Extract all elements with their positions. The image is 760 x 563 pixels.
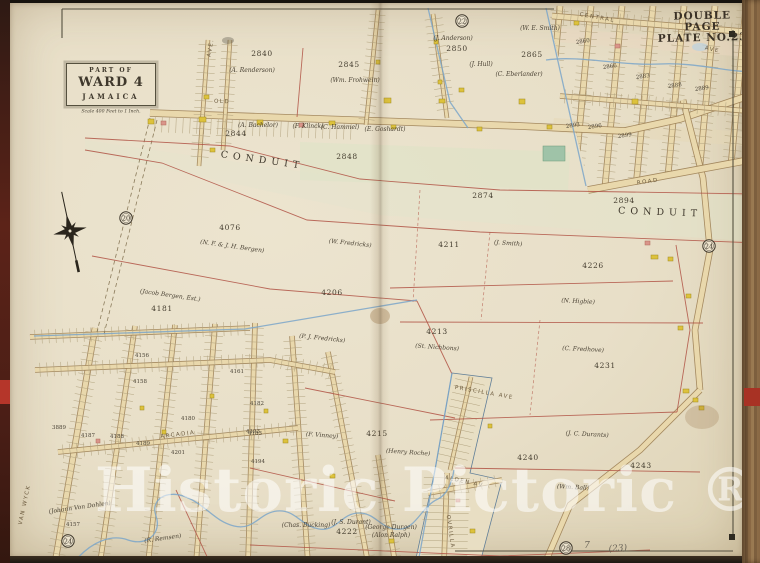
owner-label: (W. Fredricks) (328, 238, 372, 250)
plot-number: 2848 (336, 152, 358, 161)
plot-number: 4157 (66, 522, 80, 528)
plot-number: 4182 (250, 401, 264, 407)
owner-label: (Henry Roche) (386, 447, 431, 457)
plate-number: DOUBLE PAGE PLATE NO.23 (655, 10, 751, 45)
owner-label: (Wm. Frohwein) (330, 77, 380, 84)
building-footprint (389, 539, 394, 543)
building-footprint (456, 499, 460, 502)
owner-label: (Chas. Bucking) (282, 522, 331, 529)
building-footprint (683, 389, 689, 393)
building-footprint (574, 21, 579, 25)
owner-label: (J. Hull) (469, 61, 493, 68)
book-page-edge (742, 0, 760, 563)
plot-number: 2850 (446, 44, 468, 53)
building-footprint (330, 474, 335, 478)
building-footprint (651, 255, 658, 259)
svg-text:20: 20 (122, 214, 130, 222)
building-footprint (438, 80, 442, 84)
plot-number: 4240 (517, 453, 539, 462)
title-cartouche: PART OF WARD 4 JAMAICA Scale 400 Feet to… (66, 63, 156, 115)
cartouche-ward: WARD 4 (69, 75, 153, 90)
plot-number: 4194 (251, 459, 265, 465)
owner-label: (F. Vinney) (306, 431, 340, 440)
plot-number: 4243 (630, 461, 652, 470)
svg-text:28: 28 (562, 544, 570, 552)
building-footprint (632, 99, 638, 104)
plot-number: 4158 (133, 379, 147, 385)
pencil-note: 7 (584, 541, 590, 551)
plot-number: 4189 (136, 441, 150, 447)
owner-label: (Jacob Bergen, Est.) (139, 288, 201, 304)
svg-text:24: 24 (64, 537, 72, 545)
photo-edge-top (0, 0, 760, 3)
street-label: VAN WYCK (18, 484, 32, 525)
cartouche-scale: Scale 400 Feet to 1 Inch. (76, 109, 146, 114)
building-footprint (543, 146, 565, 161)
building-footprint (148, 119, 154, 124)
owner-label: (F. Klinck) (293, 123, 325, 130)
owner-label: (N. Higbie) (561, 297, 596, 306)
plate-ref-circle: 22 (456, 15, 468, 27)
building-footprint (264, 409, 268, 413)
map-sheet: 2840284528502865284428482874289440764206… (10, 3, 743, 557)
plot-number: 4231 (594, 361, 616, 370)
owner-label: (Alon Ralph) (372, 532, 411, 539)
owner-label: (Wm. Ball) (557, 483, 590, 492)
photo-edge-bottom (0, 556, 760, 563)
owner-label: (N. F. & J. H. Bergen) (200, 239, 266, 255)
plot-number: 4215 (366, 429, 388, 438)
building-footprint (547, 125, 552, 129)
owner-label: (P. J. Fredricks) (299, 333, 346, 345)
plot-number: 4226 (582, 261, 604, 270)
plot-number: 4222 (336, 527, 358, 536)
owner-label: (A. Renderson) (229, 67, 275, 74)
plate-ref-circle: 28 (560, 542, 572, 554)
building-footprint (384, 98, 391, 103)
building-footprint (488, 424, 492, 428)
building-footprint (477, 127, 482, 131)
compass-rose (45, 188, 95, 275)
building-footprint (686, 294, 691, 298)
building-footprint (459, 88, 464, 92)
plot-number: 3889 (52, 425, 66, 431)
plot-number: 4187 (81, 433, 95, 439)
owner-label: (J. Anderson) (433, 35, 473, 42)
plot-number: 4161 (230, 369, 244, 375)
plot-number: 4156 (135, 353, 149, 359)
svg-text:22: 22 (458, 17, 466, 25)
cartouche-place: JAMAICA (69, 92, 153, 101)
owner-label: (George Durgen) (365, 524, 417, 531)
binding-red-patch (0, 380, 10, 404)
plot-number: 4193 (246, 429, 260, 435)
building-footprint (439, 99, 445, 103)
plot-number: 4213 (426, 327, 448, 336)
owner-label: (J. Smith) (494, 239, 524, 248)
svg-text:24: 24 (705, 242, 713, 250)
building-footprint (283, 439, 288, 443)
plot-number: 4206 (321, 288, 343, 297)
plate-ref-circle: 24 (62, 535, 74, 547)
plate-line2: PLATE NO.23 (655, 32, 750, 45)
building-footprint (470, 529, 475, 533)
plot-number: 4188 (110, 434, 124, 440)
building-footprint (140, 406, 144, 410)
street-label: OLD (214, 99, 230, 106)
plot-number: 2894 (613, 196, 635, 205)
owner-label: (C. Fredhove) (562, 345, 605, 354)
plot-number: 2874 (472, 191, 494, 200)
plot-number: 2844 (225, 129, 247, 138)
building-footprint (161, 121, 166, 125)
book-binding-edge (0, 0, 10, 563)
owner-label: (A. Bachelor) (238, 122, 279, 129)
building-footprint (645, 241, 650, 245)
building-footprint (376, 60, 380, 64)
building-footprint (699, 406, 704, 410)
owner-label: (J. C. Durants) (565, 430, 609, 439)
page-edge-red-patch (744, 388, 760, 406)
plot-number: 2865 (521, 50, 543, 59)
building-footprint (615, 44, 620, 48)
plot-number: 2899 (618, 132, 633, 140)
owner-label: (E. Goshardt) (365, 126, 407, 133)
building-footprint (693, 398, 698, 402)
building-footprint (210, 148, 215, 152)
owner-label: (St. Nichbons) (415, 342, 460, 352)
atlas-photo: 2840284528502865284428482874289440764206… (0, 0, 760, 563)
owner-label: (C. Hammel) (321, 124, 360, 131)
plot-number: 4181 (151, 304, 173, 313)
cartouche-part-of: PART OF (69, 67, 153, 74)
building-footprint (96, 439, 100, 443)
owner-label: (C. Eberlander) (495, 71, 543, 78)
plate-ref-circle: 20 (120, 212, 132, 224)
owner-label: (W. E. Smith) (520, 25, 560, 32)
building-footprint (204, 95, 209, 99)
building-footprint (199, 117, 206, 122)
building-footprint (668, 257, 673, 261)
building-footprint (678, 326, 683, 330)
owner-label: (Johann Von Dohlen) (48, 500, 112, 516)
plot-number: 4180 (181, 416, 195, 422)
plot-number: 2840 (251, 49, 273, 58)
plot-number: 2888 (668, 82, 683, 90)
pencil-note: (23) (608, 542, 628, 554)
plot-number: 2845 (338, 60, 360, 69)
plot-number: 4201 (171, 450, 185, 456)
cartouche-frame: PART OF WARD 4 JAMAICA (66, 63, 156, 106)
building-footprint (210, 394, 214, 398)
plot-number: 4211 (438, 240, 460, 249)
building-footprint (519, 99, 525, 104)
plot-number: 4076 (219, 223, 241, 232)
plate-ref-circle: 24 (703, 240, 715, 252)
